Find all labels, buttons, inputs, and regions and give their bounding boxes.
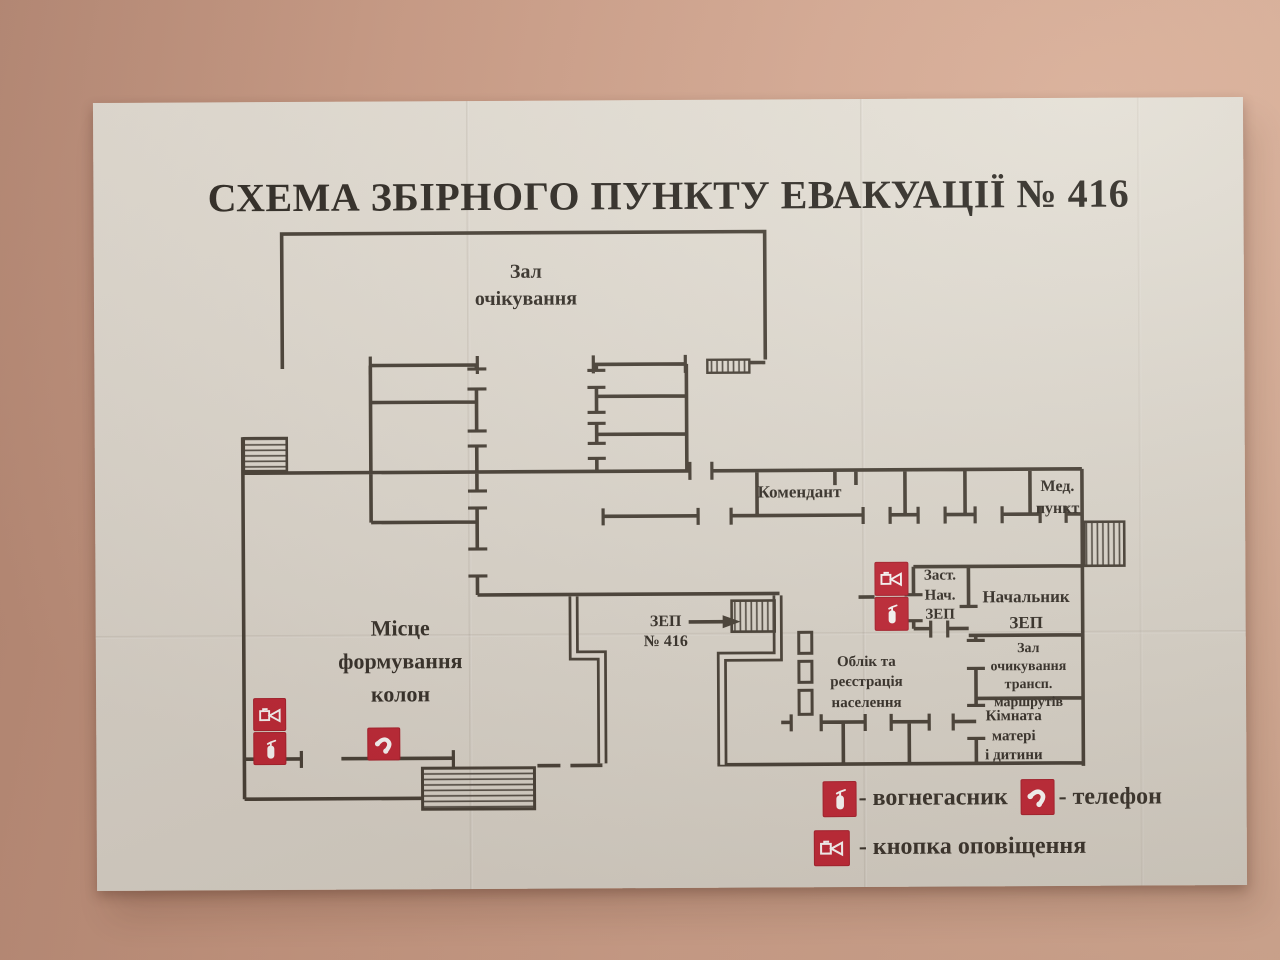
stairs-hall-bottom bbox=[707, 360, 749, 373]
photo-scene: СХЕМА ЗБІРНОГО ПУНКТУ ЕВАКУАЦІЇ № 416 bbox=[0, 0, 1280, 960]
stairs-bottom-exit bbox=[422, 768, 534, 810]
fire-extinguisher-icon bbox=[823, 781, 857, 817]
alert-button-icon bbox=[253, 698, 286, 731]
fire-extinguisher-icon bbox=[875, 597, 909, 631]
room-label-head-zep: Начальник ЗЕП bbox=[973, 584, 1078, 636]
alert-button-icon bbox=[814, 830, 850, 866]
telephone-icon bbox=[1020, 779, 1054, 815]
room-label-transport-waiting-hall: Зал очикування трансп. маршрутів bbox=[981, 640, 1076, 712]
stairs-entrance bbox=[732, 600, 775, 631]
evacuation-poster: СХЕМА ЗБІРНОГО ПУНКТУ ЕВАКУАЦІЇ № 416 bbox=[93, 97, 1247, 891]
registration-desks bbox=[799, 632, 812, 714]
room-label-registration: Облік та реєстрація населення bbox=[814, 652, 919, 713]
room-label-med-point: Мед. пункт bbox=[1020, 476, 1095, 520]
legend-label-phone: - телефон bbox=[1059, 783, 1162, 811]
room-label-waiting-hall: Зал очікування bbox=[431, 258, 621, 313]
stairs-upper-left bbox=[244, 438, 287, 471]
legend-label-alert-button: - кнопка оповіщення bbox=[859, 833, 1086, 861]
room-label-mother-child: Кімната матері і дитини bbox=[966, 707, 1061, 766]
legend-label-extinguisher: - вогнегасник bbox=[859, 784, 1008, 812]
label-zep-416: ЗЕП № 416 bbox=[621, 612, 711, 652]
fire-extinguisher-icon bbox=[253, 732, 286, 765]
room-label-deputy-head-zep: Заст. Нач. ЗЕП bbox=[907, 566, 972, 625]
room-label-commandant: Комендант bbox=[727, 481, 872, 505]
stairs-right bbox=[1084, 522, 1124, 566]
telephone-icon bbox=[367, 727, 400, 760]
alert-button-icon bbox=[874, 562, 908, 596]
area-label-column-forming: Місце формування колон bbox=[303, 611, 499, 711]
walls bbox=[242, 230, 1084, 799]
